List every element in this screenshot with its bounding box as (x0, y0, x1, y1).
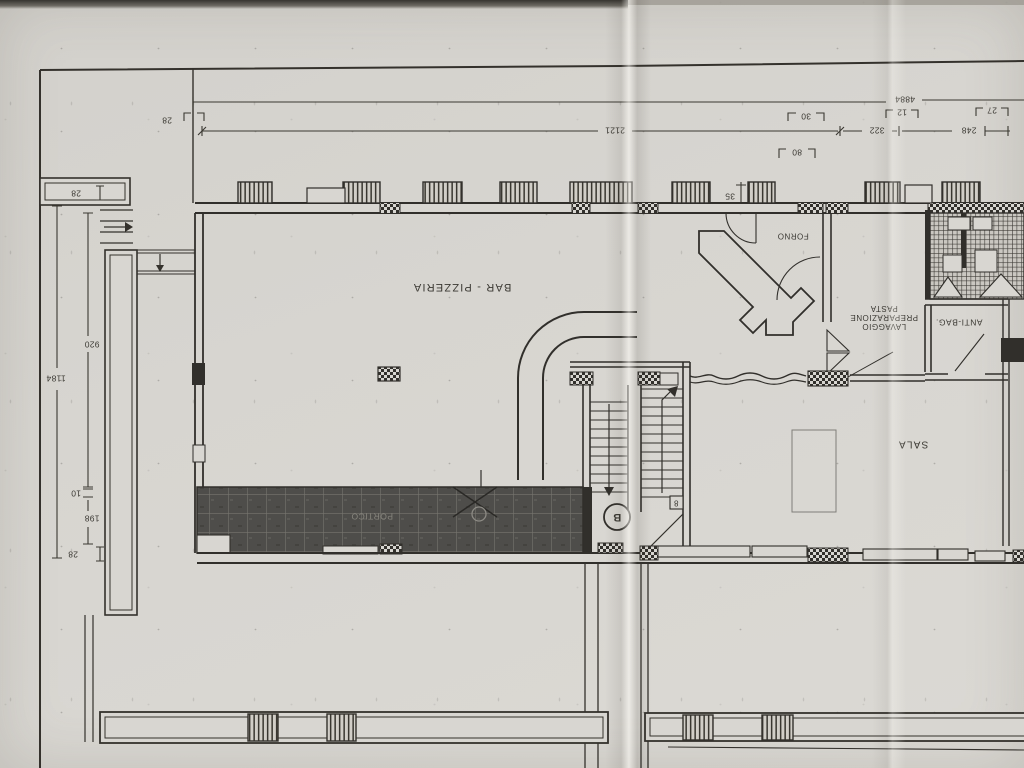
dim-span-2121: 2121 (605, 125, 625, 134)
label-lavaggio-line1: LAVAGGIO (850, 321, 918, 330)
lower-site-works (100, 563, 1024, 768)
label-sala: SALA (898, 439, 928, 450)
sala-stub-outline (792, 430, 836, 512)
anti-bag-room (925, 299, 1024, 546)
dim-1184: 1184 (46, 373, 65, 382)
label-bar-pizzeria: BAR - PIZZERIA (413, 281, 512, 293)
dim-322: 322 (869, 125, 884, 134)
stair-up-arrow-icon (667, 386, 678, 397)
bottom-band-right (645, 713, 1024, 750)
dim-12: 12 (897, 107, 907, 116)
window-bay (905, 185, 932, 203)
dim-left-offset-top-28: 28 (71, 188, 81, 197)
dim-80: 80 (792, 147, 802, 156)
dim-left-offset-bottom-28: 28 (68, 549, 78, 558)
scanner-edge-strip (0, 0, 628, 9)
double-door-symbol (827, 330, 849, 374)
wc-fixture (943, 255, 962, 272)
wc-fixture (948, 217, 970, 230)
label-lavaggio-line2: PREPARAZIONE (850, 313, 918, 322)
plan-linework (0, 0, 1024, 768)
door-leaf (955, 334, 984, 371)
sala-top-wall (660, 352, 925, 512)
door-swing-arc (777, 257, 820, 300)
dim-10: 10 (71, 488, 81, 497)
scanner-edge-strip-right (628, 0, 1024, 5)
label-portico: PORTICO (351, 511, 393, 520)
window-bay (307, 188, 345, 203)
entrance-ramp (85, 210, 195, 742)
building-top-wall (195, 182, 1024, 214)
forno-lavaggio-wall (823, 213, 831, 322)
dim-35: 35 (725, 191, 735, 200)
scanned-floor-plan-sheet: BAR - PIZZERIA FORNO LAVAGGIO PREPARAZIO… (0, 0, 1024, 768)
site-boundary (40, 61, 1024, 768)
dim-920: 920 (84, 339, 99, 348)
label-anti-bag: ANTI-BAG. (935, 317, 982, 326)
label-lavaggio-preparazione-pasta: LAVAGGIO PREPARAZIONE PASTA (850, 304, 918, 330)
bathrooms (925, 210, 1024, 299)
forno-area (699, 213, 849, 374)
bottom-band-left (100, 712, 608, 743)
column-pier (378, 367, 400, 381)
dim-30: 30 (801, 111, 811, 120)
oven-flue-shape (699, 231, 814, 335)
dim-total-4884: 4884 (895, 94, 915, 103)
dim-248: 248 (961, 125, 976, 134)
dim-198: 198 (84, 513, 99, 522)
label-stair-b: B (613, 511, 621, 523)
ramp-arrow-icon (125, 222, 133, 232)
leader-line (848, 352, 893, 377)
dim-top-offset-28: 28 (162, 115, 172, 124)
bar-room (378, 312, 637, 487)
label-forno: FORNO (777, 231, 808, 240)
radiator-blocks (238, 182, 980, 203)
wc-fixture (973, 217, 992, 230)
dim-27: 27 (987, 105, 997, 114)
label-door-tag-8: 8 (674, 498, 679, 507)
stairwell (570, 362, 690, 553)
label-lavaggio-line3: PASTA (850, 304, 918, 313)
wc-fixture (975, 250, 997, 272)
